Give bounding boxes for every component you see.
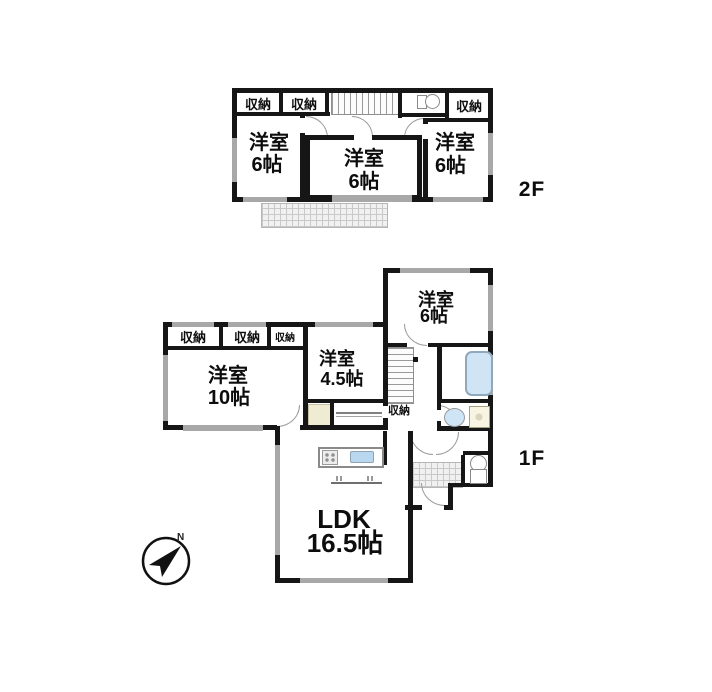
closet-slide-door: [336, 412, 382, 414]
window-segment: [163, 355, 168, 421]
room-name: 洋室: [198, 366, 258, 387]
window-segment: [488, 133, 493, 175]
compass-icon: N: [136, 528, 200, 592]
toilet-bowl-icon: [425, 94, 440, 109]
door-arc: [352, 116, 373, 137]
wall-segment: [303, 399, 387, 403]
wall-segment: [398, 113, 448, 117]
wall-segment: [372, 135, 422, 140]
window-segment: [172, 322, 214, 327]
floor-label-2f: 2F: [512, 179, 552, 201]
window-segment: [275, 445, 280, 555]
room-size: 6帖: [334, 172, 394, 193]
wall-segment: [163, 346, 307, 350]
room-size: 6帖: [238, 155, 296, 176]
bathtub-icon: [465, 351, 493, 396]
wall-segment: [437, 403, 441, 410]
wall-segment: [232, 88, 493, 93]
closet-label: 収納: [268, 334, 302, 345]
wall-segment: [303, 322, 308, 430]
wall-segment: [423, 118, 493, 122]
room-name: 洋室: [308, 350, 366, 369]
staircase-1f: [387, 347, 414, 404]
wall-segment: [305, 135, 354, 140]
window-segment: [433, 197, 483, 202]
wall-segment: [383, 343, 407, 347]
wall-segment: [423, 118, 428, 124]
window-segment: [400, 268, 470, 273]
chair-mark: [371, 476, 373, 481]
wall-segment: [232, 112, 330, 116]
room-size: 4.5帖: [309, 370, 375, 389]
door-arc: [421, 483, 445, 506]
chair-mark: [367, 476, 369, 481]
wall-segment: [219, 322, 223, 350]
room-name: 洋室: [334, 149, 394, 170]
door-arc: [410, 432, 433, 455]
closet-label: 収納: [447, 100, 491, 114]
closet-fill: [308, 404, 332, 427]
wall-segment: [437, 347, 442, 403]
wall-segment: [444, 505, 453, 510]
room-size: 6帖: [406, 307, 462, 326]
closet-label: 収納: [170, 331, 216, 345]
closet-slide-door: [336, 416, 382, 417]
door-arc: [404, 324, 427, 346]
kitchen-sink-icon: [350, 451, 374, 463]
floor-plan: 収納 収納 収納 洋室 6帖 洋室 6帖 洋室 6帖 2F: [0, 0, 712, 692]
closet-label: 収納: [224, 331, 270, 345]
window-segment: [243, 197, 287, 202]
room-name: 洋室: [238, 133, 300, 154]
wall-segment: [300, 425, 387, 430]
room-size: 10帖: [196, 388, 262, 409]
wall-segment: [417, 135, 422, 200]
wall-segment: [405, 505, 422, 510]
window-segment: [228, 322, 266, 327]
toilet-tank-icon: [470, 469, 487, 484]
room-name: 洋室: [425, 133, 485, 154]
room-size: 6帖: [423, 156, 478, 177]
window-segment: [488, 285, 493, 331]
window-segment: [183, 425, 263, 431]
window-segment: [315, 322, 373, 327]
balcony: [261, 203, 388, 228]
closet-label: 収納: [236, 98, 280, 112]
floor-label-1f: 1F: [512, 448, 552, 470]
washing-machine-icon: [469, 406, 490, 428]
room-size: 16.5帖: [297, 530, 393, 557]
compass-north-label: N: [177, 532, 184, 543]
window-segment: [332, 195, 412, 202]
closet-label: 収納: [282, 98, 326, 112]
closet-label: 収納: [382, 406, 416, 418]
wall-segment: [300, 112, 305, 118]
window-segment: [300, 578, 388, 583]
wall-segment: [413, 357, 418, 362]
wall-segment: [437, 421, 441, 430]
wall-segment: [437, 399, 493, 403]
chair-mark: [340, 476, 342, 481]
kitchen-stove-icon: [322, 450, 338, 465]
chair-mark: [336, 476, 338, 481]
staircase-2f: [331, 91, 399, 115]
window-segment: [232, 138, 237, 182]
door-arc: [277, 405, 300, 427]
washbasin-icon: [444, 408, 465, 427]
door-arc: [436, 432, 459, 455]
wall-segment: [330, 403, 334, 430]
dining-table: [331, 482, 382, 484]
wall-segment: [305, 135, 310, 200]
